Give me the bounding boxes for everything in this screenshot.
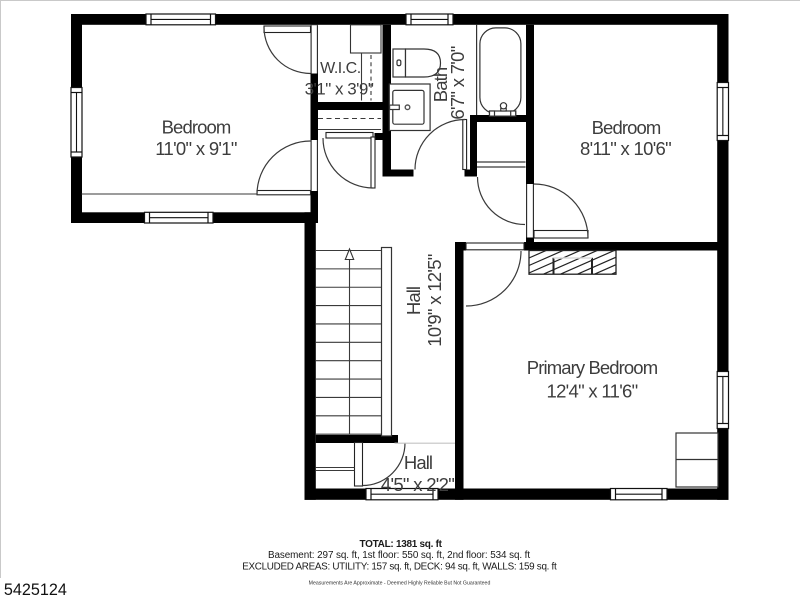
svg-text:TOTAL: 1381 sq. ft: TOTAL: 1381 sq. ft [359,539,442,550]
svg-text:W.I.C.: W.I.C. [320,60,361,77]
svg-text:Bedroom: Bedroom [592,117,661,138]
svg-text:Hall: Hall [403,287,424,315]
svg-text:Bedroom: Bedroom [162,117,231,138]
svg-text:4'5" x 2'2": 4'5" x 2'2" [381,474,454,495]
svg-text:EXCLUDED AREAS: UTILITY: 157 s: EXCLUDED AREAS: UTILITY: 157 sq. ft, DEC… [242,562,557,573]
svg-text:5425124: 5425124 [4,581,67,599]
svg-text:Hall: Hall [404,452,432,473]
svg-text:12'4" x 11'6": 12'4" x 11'6" [547,381,638,402]
svg-text:Measurements Are Approximate -: Measurements Are Approximate - Deemed Hi… [309,581,491,587]
svg-text:Basement: 297 sq. ft, 1st floo: Basement: 297 sq. ft, 1st floor: 550 sq.… [268,550,530,561]
svg-text:Primary Bedroom: Primary Bedroom [527,357,658,378]
svg-text:10'9" x 12'5": 10'9" x 12'5" [424,254,445,346]
svg-text:8'11" x 10'6": 8'11" x 10'6" [580,138,671,159]
svg-text:11'0" x 9'1": 11'0" x 9'1" [155,138,237,159]
svg-text:3'1" x 3'9": 3'1" x 3'9" [305,80,374,99]
svg-text:6'7" x 7'0": 6'7" x 7'0" [447,46,468,119]
